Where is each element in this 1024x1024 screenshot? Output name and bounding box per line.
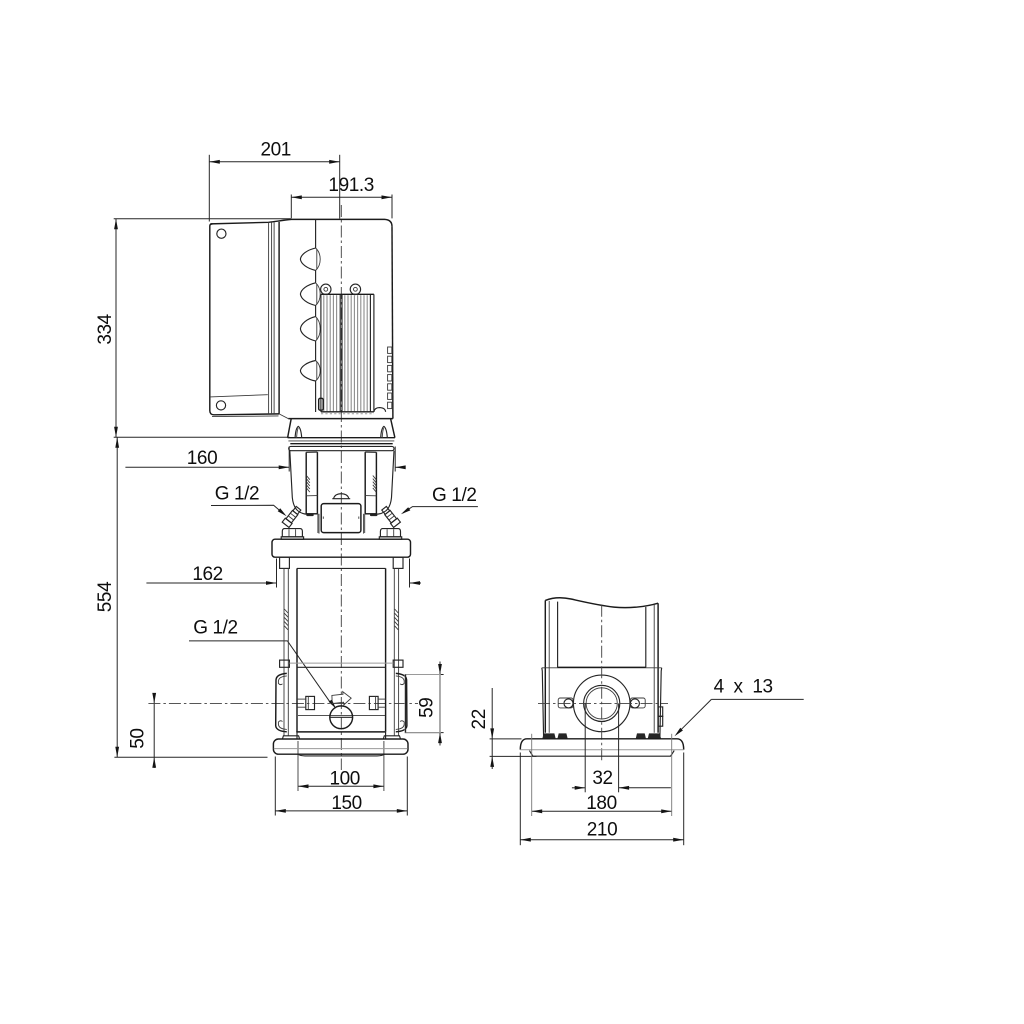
svg-text:210: 210 — [587, 820, 618, 841]
svg-text:G 1/2: G 1/2 — [193, 618, 237, 639]
svg-text:554: 554 — [95, 581, 116, 612]
svg-text:160: 160 — [187, 448, 218, 469]
svg-text:201: 201 — [260, 139, 291, 160]
svg-text:G 1/2: G 1/2 — [215, 483, 259, 504]
svg-text:334: 334 — [95, 313, 116, 344]
svg-text:32: 32 — [592, 768, 612, 789]
svg-text:162: 162 — [192, 564, 223, 585]
svg-text:22: 22 — [469, 709, 490, 729]
svg-text:59: 59 — [417, 698, 438, 718]
svg-text:4 x 13: 4 x 13 — [714, 677, 773, 698]
svg-text:50: 50 — [128, 728, 149, 748]
svg-text:191.3: 191.3 — [328, 175, 374, 196]
svg-text:G 1/2: G 1/2 — [432, 485, 476, 506]
